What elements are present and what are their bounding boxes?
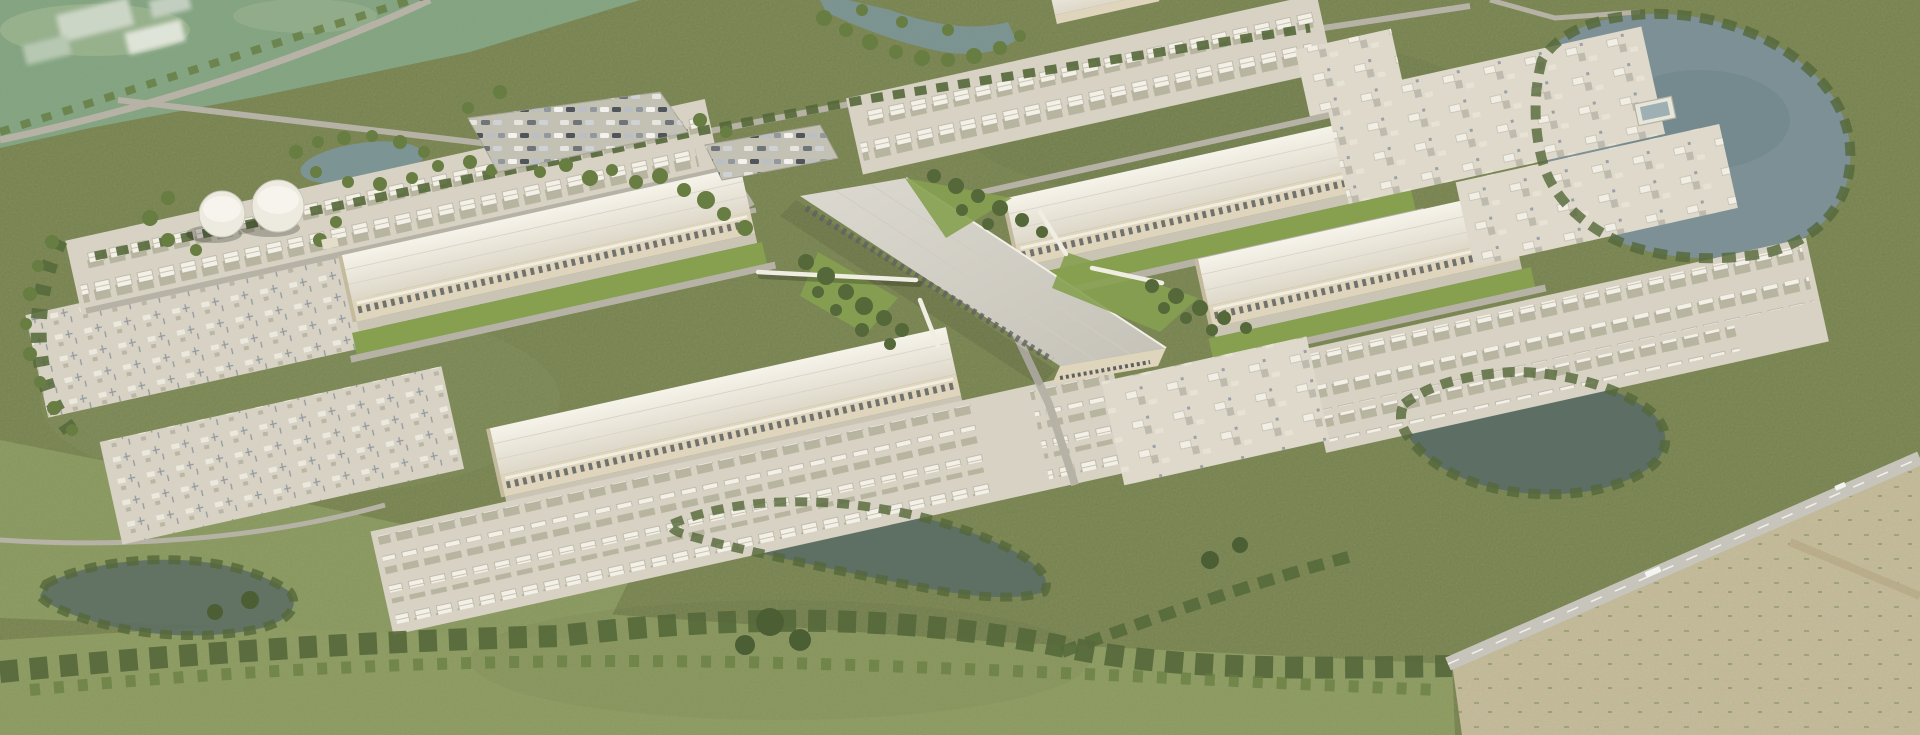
water-tank-2-top	[257, 186, 299, 214]
aerial-render-scene	[0, 0, 1920, 735]
water-tank-1-top	[203, 196, 241, 222]
campus-render	[0, 0, 1920, 735]
